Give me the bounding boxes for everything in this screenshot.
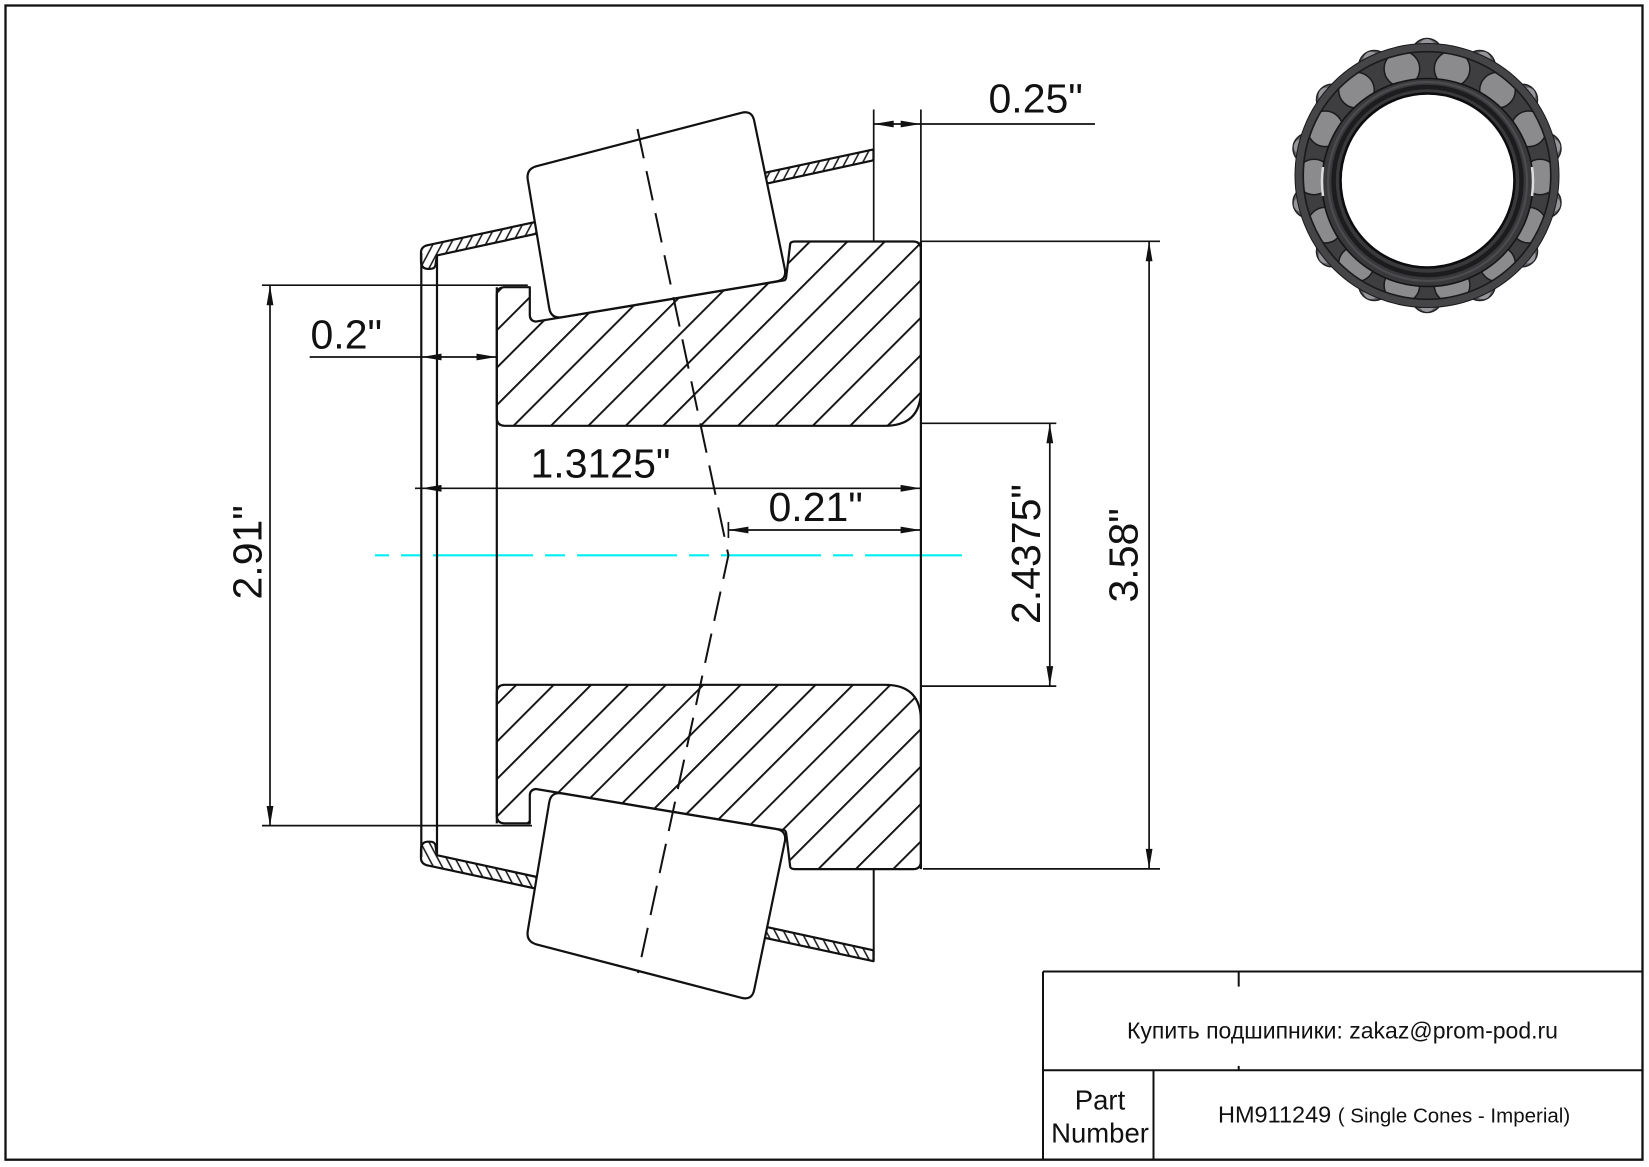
svg-text:HM911249 ( Single Cones - Impe: HM911249 ( Single Cones - Imperial) <box>1218 1101 1570 1127</box>
svg-text:3.58": 3.58" <box>1101 508 1147 602</box>
svg-text:2.91": 2.91" <box>225 505 271 599</box>
svg-text:0.2": 0.2" <box>311 311 383 357</box>
svg-text:0.21": 0.21" <box>769 484 863 530</box>
svg-text:Number: Number <box>1051 1117 1149 1148</box>
svg-text:0.25": 0.25" <box>989 75 1083 121</box>
svg-text:Купить подшипники: zakaz@prom-: Купить подшипники: zakaz@prom-pod.ru <box>1127 1017 1558 1043</box>
svg-text:Part: Part <box>1075 1084 1126 1115</box>
svg-text:2.4375": 2.4375" <box>1003 484 1049 624</box>
svg-text:1.3125": 1.3125" <box>531 440 671 486</box>
